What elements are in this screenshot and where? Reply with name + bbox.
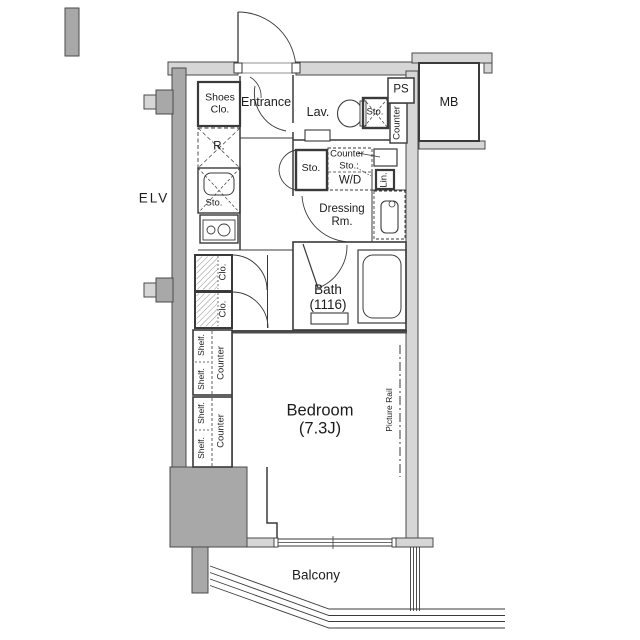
counter-upper-label: Counter: [217, 346, 228, 380]
refrigerator-label: R.: [213, 141, 225, 154]
floorplan-drawing: [0, 0, 640, 640]
closet-upper-door-swing: [232, 255, 267, 290]
picture-rail-label: Picture Rail: [385, 388, 395, 431]
closets: [195, 255, 268, 328]
counter-sto-sto-label: Sto.:: [339, 162, 359, 173]
shelf-label-3: Shelf.: [197, 402, 207, 424]
toilet-storage-label: Sto.: [367, 108, 384, 119]
shoes-closet-label: Shoes Clo.: [205, 92, 235, 116]
hall-storage-label: Sto.: [302, 163, 321, 175]
shelf-label-1: Shelf.: [197, 334, 207, 356]
counter-sto-counter-label: Counter: [330, 150, 364, 161]
lav-counter-label: Counter: [393, 106, 404, 140]
closet-lower-label: Clo.: [219, 301, 230, 318]
counter-box: [374, 149, 397, 166]
bedroom-label: Bedroom (7.3J): [287, 402, 354, 439]
entrance-door-swing: [238, 12, 296, 70]
floorplan: ELV Shoes Clo. Entrance Lav. Sto. PS MB …: [0, 0, 640, 640]
kitchen-sink: [204, 173, 234, 195]
bath-label: Bath (1116): [309, 282, 346, 312]
pipe-space-label: PS: [393, 84, 408, 97]
meter-box-label: MB: [440, 95, 459, 109]
balcony-label: Balcony: [292, 567, 340, 582]
lavatory-label: Lav.: [307, 105, 330, 119]
toilet: [338, 100, 363, 127]
closet-lower-door-swing: [232, 292, 268, 328]
washer-dryer-label: W/D: [339, 175, 361, 188]
entrance-door: [234, 12, 300, 98]
closet-upper-label: Clo.: [219, 264, 230, 281]
shelf-label-2: Shelf.: [197, 368, 207, 390]
shelf-label-4: Shelf.: [197, 437, 207, 459]
linen-label: Lin.: [380, 172, 391, 187]
bathtub: [358, 250, 406, 323]
dressing-room-label: Dressing Rm.: [319, 203, 364, 229]
elevator-label: ELV: [139, 190, 170, 205]
counter-lower-label: Counter: [217, 414, 228, 448]
bedroom-window: [274, 536, 396, 549]
stove: [200, 215, 238, 243]
entrance-label: Entrance: [241, 95, 291, 109]
kitchen-storage-label: Sto.: [206, 199, 223, 210]
balcony-railing: [210, 547, 505, 628]
